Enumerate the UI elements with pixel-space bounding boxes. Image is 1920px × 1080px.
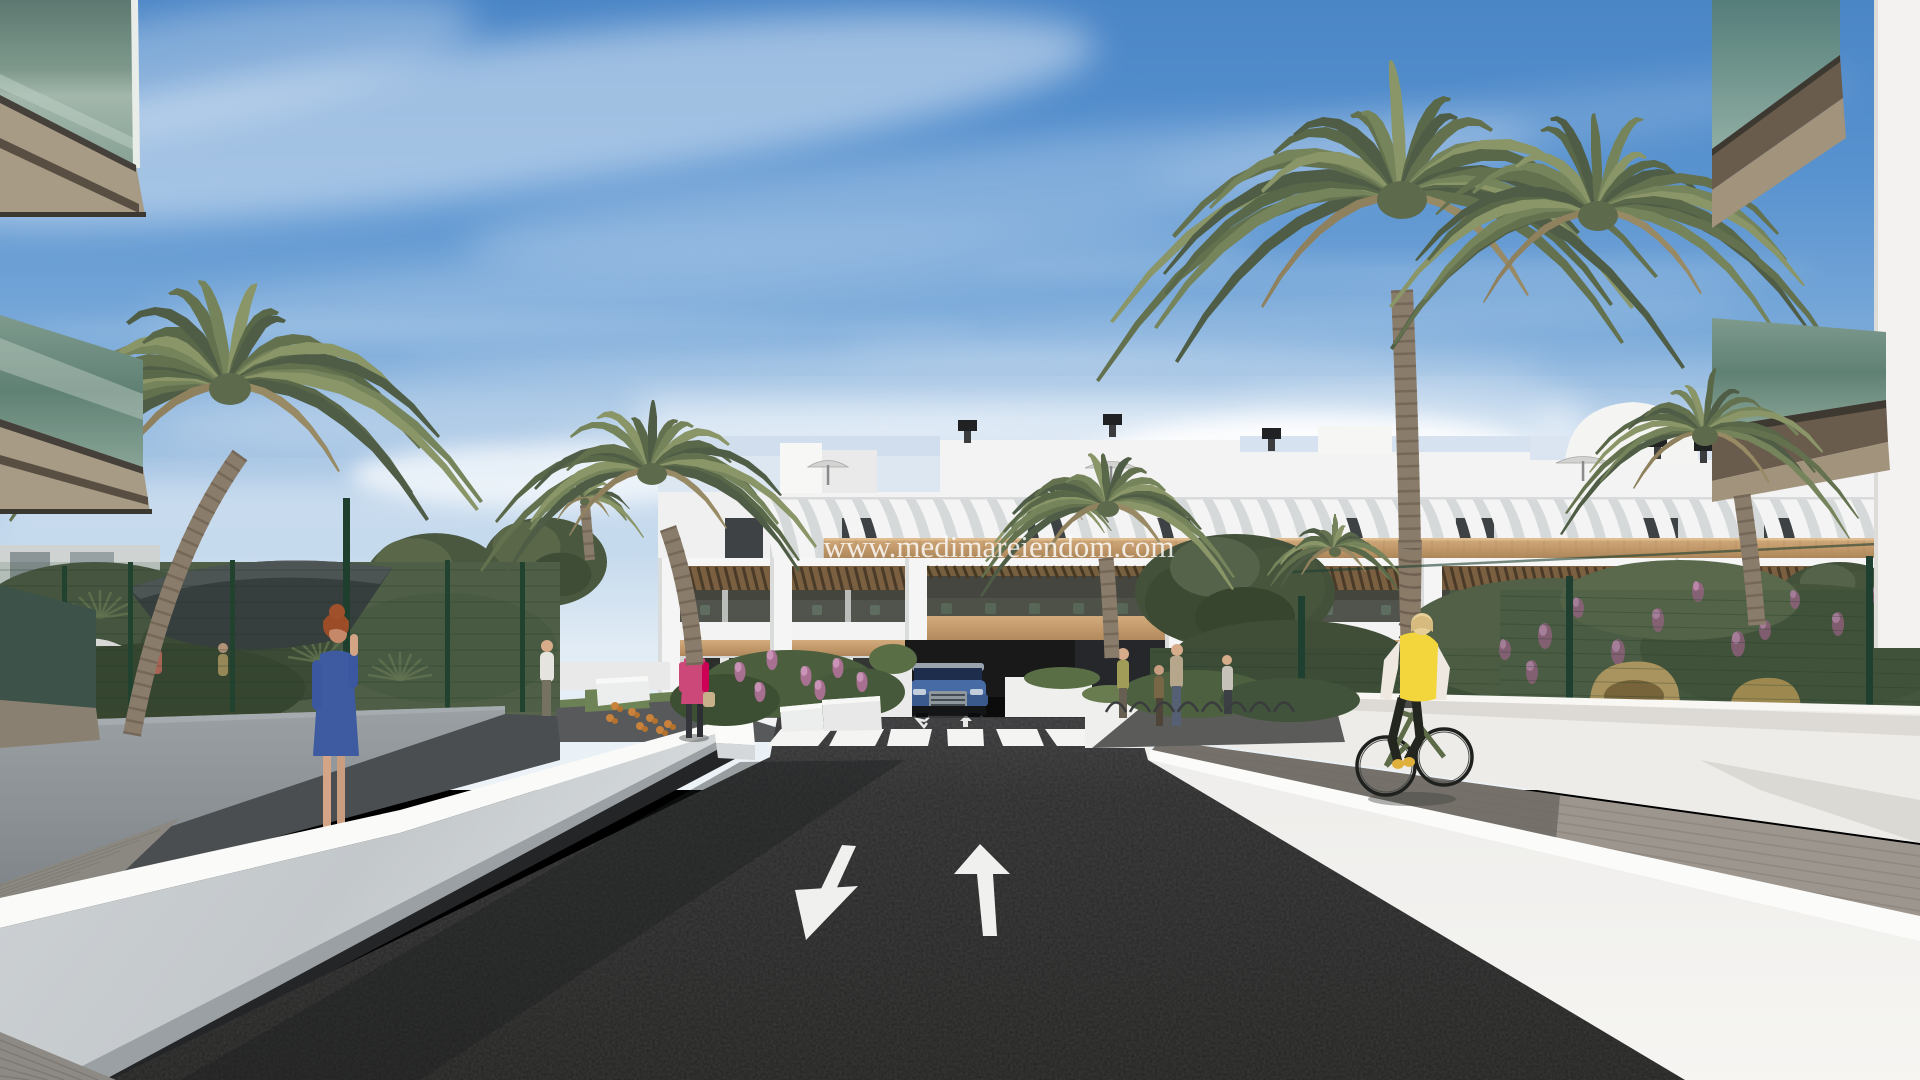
svg-text:www.medimareiendom.com: www.medimareiendom.com (824, 529, 1175, 564)
